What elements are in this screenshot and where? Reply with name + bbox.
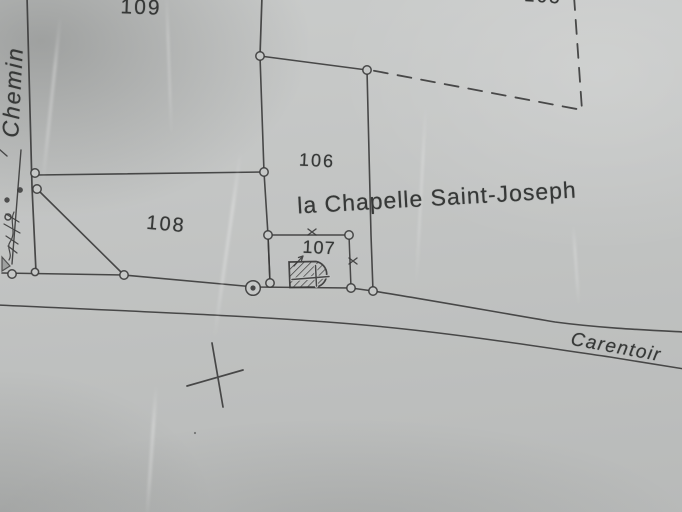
parcel-108-west-diagonal <box>38 190 124 275</box>
triangle-mark <box>2 257 10 271</box>
boundary-marker <box>8 270 16 278</box>
boundary-marker <box>256 52 264 60</box>
boundary-marker <box>264 231 272 239</box>
survey-cross-icon <box>187 343 243 407</box>
parcel-label-108: 108 <box>145 212 186 238</box>
boundary-marker <box>363 66 371 74</box>
boundary-marker <box>260 168 268 176</box>
boundary-marker <box>33 185 41 193</box>
boundary-marker <box>31 268 38 275</box>
parcel-109-south-boundary <box>37 172 264 175</box>
parcel-109-east-boundary <box>260 0 262 56</box>
parcel-106-east-boundary <box>367 70 373 291</box>
boundary-marker <box>266 279 274 287</box>
filled-dot-marker <box>4 197 9 202</box>
survey-monument-marker <box>246 281 261 296</box>
map-linework <box>0 0 682 512</box>
parcel-label-107: 107 <box>302 237 336 260</box>
edge-tick-mark <box>0 149 7 156</box>
boundary-marker <box>369 287 377 295</box>
road-label-chemin: Chemin <box>0 46 29 139</box>
filled-dot-marker <box>17 187 23 193</box>
boundary-marker <box>345 231 353 239</box>
chapel-building <box>289 256 329 288</box>
boundary-marker <box>31 169 39 177</box>
boundary-marker <box>120 271 128 279</box>
cadastral-map-photo: Chemin 109 105 106 la Chapelle Saint-Jos… <box>0 0 682 512</box>
ink-speck <box>194 432 196 434</box>
parcel-106-north-boundary <box>260 56 367 70</box>
parcel-105-dashed-boundary <box>370 0 582 110</box>
parcel-label-109: 109 <box>120 0 162 21</box>
carentoir-road <box>0 273 682 369</box>
boundary-marker <box>347 284 355 292</box>
parcel-label-106: 106 <box>298 150 335 173</box>
